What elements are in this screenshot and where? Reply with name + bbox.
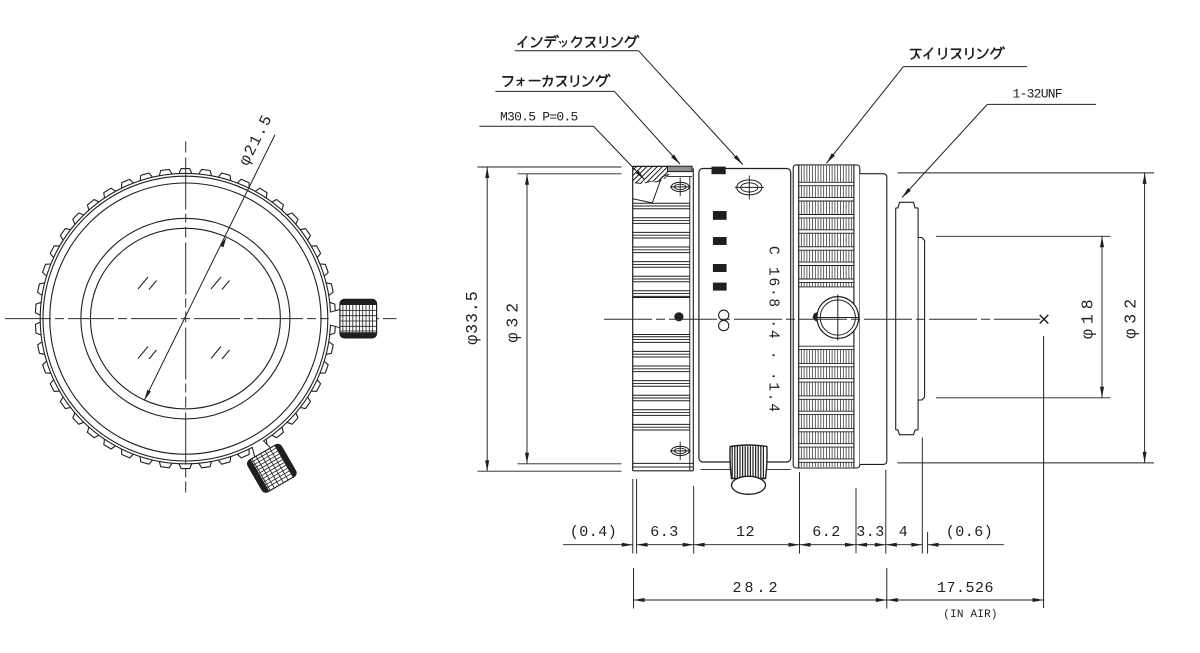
svg-text:φ18: φ18 xyxy=(1079,294,1098,339)
svg-text:4: 4 xyxy=(899,524,909,541)
svg-text:(0.6): (0.6) xyxy=(946,524,994,541)
svg-text:6.2: 6.2 xyxy=(812,524,841,541)
svg-text:17.526: 17.526 xyxy=(937,580,994,597)
svg-text:φ32: φ32 xyxy=(504,298,523,343)
svg-text:3.3: 3.3 xyxy=(856,524,885,541)
svg-text:C 16·8 ·4 · ·1.4: C 16·8 ·4 · ·1.4 xyxy=(765,246,781,412)
svg-text:1-32UNF: 1-32UNF xyxy=(1013,87,1062,102)
svg-text:12: 12 xyxy=(736,524,755,541)
svg-text:φ33.5: φ33.5 xyxy=(463,290,482,345)
svg-text:6.3: 6.3 xyxy=(650,524,679,541)
svg-text:M30.5 P=0.5: M30.5 P=0.5 xyxy=(500,110,578,125)
svg-text:(0.4): (0.4) xyxy=(570,524,618,541)
svg-text:28.2: 28.2 xyxy=(732,580,780,597)
svg-text:(IN AIR): (IN AIR) xyxy=(943,609,997,621)
svg-text:φ32: φ32 xyxy=(1122,294,1141,339)
